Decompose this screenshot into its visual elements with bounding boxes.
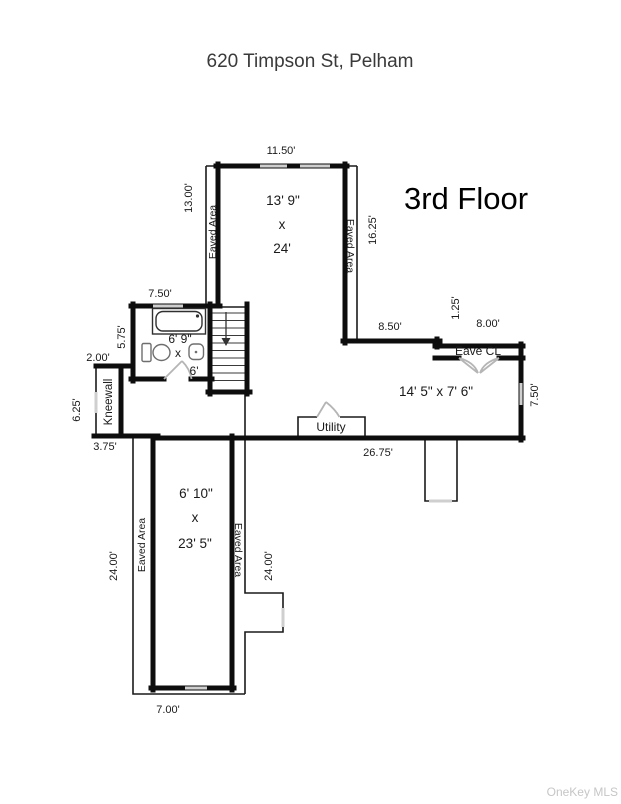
dim-label-knee-height: 6.25' — [71, 398, 83, 422]
page-title: 620 Timpson St, Pelham — [207, 51, 414, 72]
dim-label-mid-bottom-width: 26.75' — [363, 447, 393, 459]
dim-label-mid-right-height: 7.50' — [529, 383, 541, 407]
dim-label-bottom-left-height: 24.00' — [108, 551, 120, 581]
toilet — [142, 344, 170, 362]
room-label-bath-sep: x — [175, 346, 181, 360]
room-label-top-length: 24' — [273, 241, 291, 256]
eaved-area-label-top-left: Eaved Area — [207, 205, 219, 259]
room-label-top-sep: x — [279, 217, 286, 232]
floorplan-page: 620 Timpson St, Pelham 3rd Floor — [0, 0, 621, 804]
kneewall-label: Kneewall — [103, 379, 115, 426]
floor-title: 3rd Floor — [404, 181, 528, 216]
room-label-bath-width: 6' 9" — [168, 332, 191, 346]
staircase — [211, 312, 246, 381]
dim-label-bottom-right-height: 24.00' — [263, 551, 275, 581]
eaved-area-label-bottom-left: Eaved Area — [136, 518, 148, 572]
dim-label-knee-bottom: 3.75' — [93, 441, 117, 453]
room-label-bottom-sep: x — [192, 510, 199, 525]
watermark: OneKey MLS — [547, 785, 618, 799]
dim-label-mid-left-width: 8.50' — [378, 321, 402, 333]
eaved-area-label-bottom-right: Eaved Area — [232, 523, 244, 577]
bump-out-middle — [425, 440, 457, 501]
dim-label-bath-width: 7.50' — [148, 288, 172, 300]
sink — [189, 344, 204, 360]
room-label-middle-size: 14' 5" x 7' 6" — [399, 384, 473, 399]
dim-label-top-width: 11.50' — [267, 145, 296, 157]
room-label-bottom-length: 23' 5" — [178, 536, 212, 551]
floorplan-svg: 620 Timpson St, Pelham 3rd Floor — [0, 0, 621, 804]
room-label-top-width: 13' 9" — [266, 193, 300, 208]
dim-label-knee-step: 2.00' — [86, 352, 110, 364]
dim-label-bottom-width: 7.00' — [156, 704, 180, 716]
utility-label: Utility — [316, 420, 345, 434]
dim-label-bath-left-height: 5.75' — [116, 325, 128, 349]
dimension-labels: 11.50' 13.00' 16.25' 7.50' 5.75' 2.00' 6… — [71, 145, 541, 716]
door-arc-bathroom — [164, 361, 192, 379]
stairs-down-arrow — [222, 312, 231, 346]
door-arc-utility — [317, 402, 340, 417]
eave-closet-label: Eave CL — [455, 344, 501, 358]
dim-label-top-right-height: 16.25' — [367, 215, 379, 245]
dim-label-mid-right-width: 8.00' — [476, 318, 500, 330]
walls — [94, 164, 523, 690]
eaved-area-label-top-right: Eaved Area — [344, 219, 356, 273]
dim-label-mid-step: 1.25' — [450, 296, 462, 320]
room-label-bottom-width: 6' 10" — [179, 486, 213, 501]
bathtub — [153, 309, 206, 335]
room-label-bath-length: 6' — [190, 364, 199, 378]
door-arc-eave-closet — [459, 358, 499, 373]
windows — [96, 166, 521, 688]
dim-label-top-left-height: 13.00' — [183, 183, 195, 213]
